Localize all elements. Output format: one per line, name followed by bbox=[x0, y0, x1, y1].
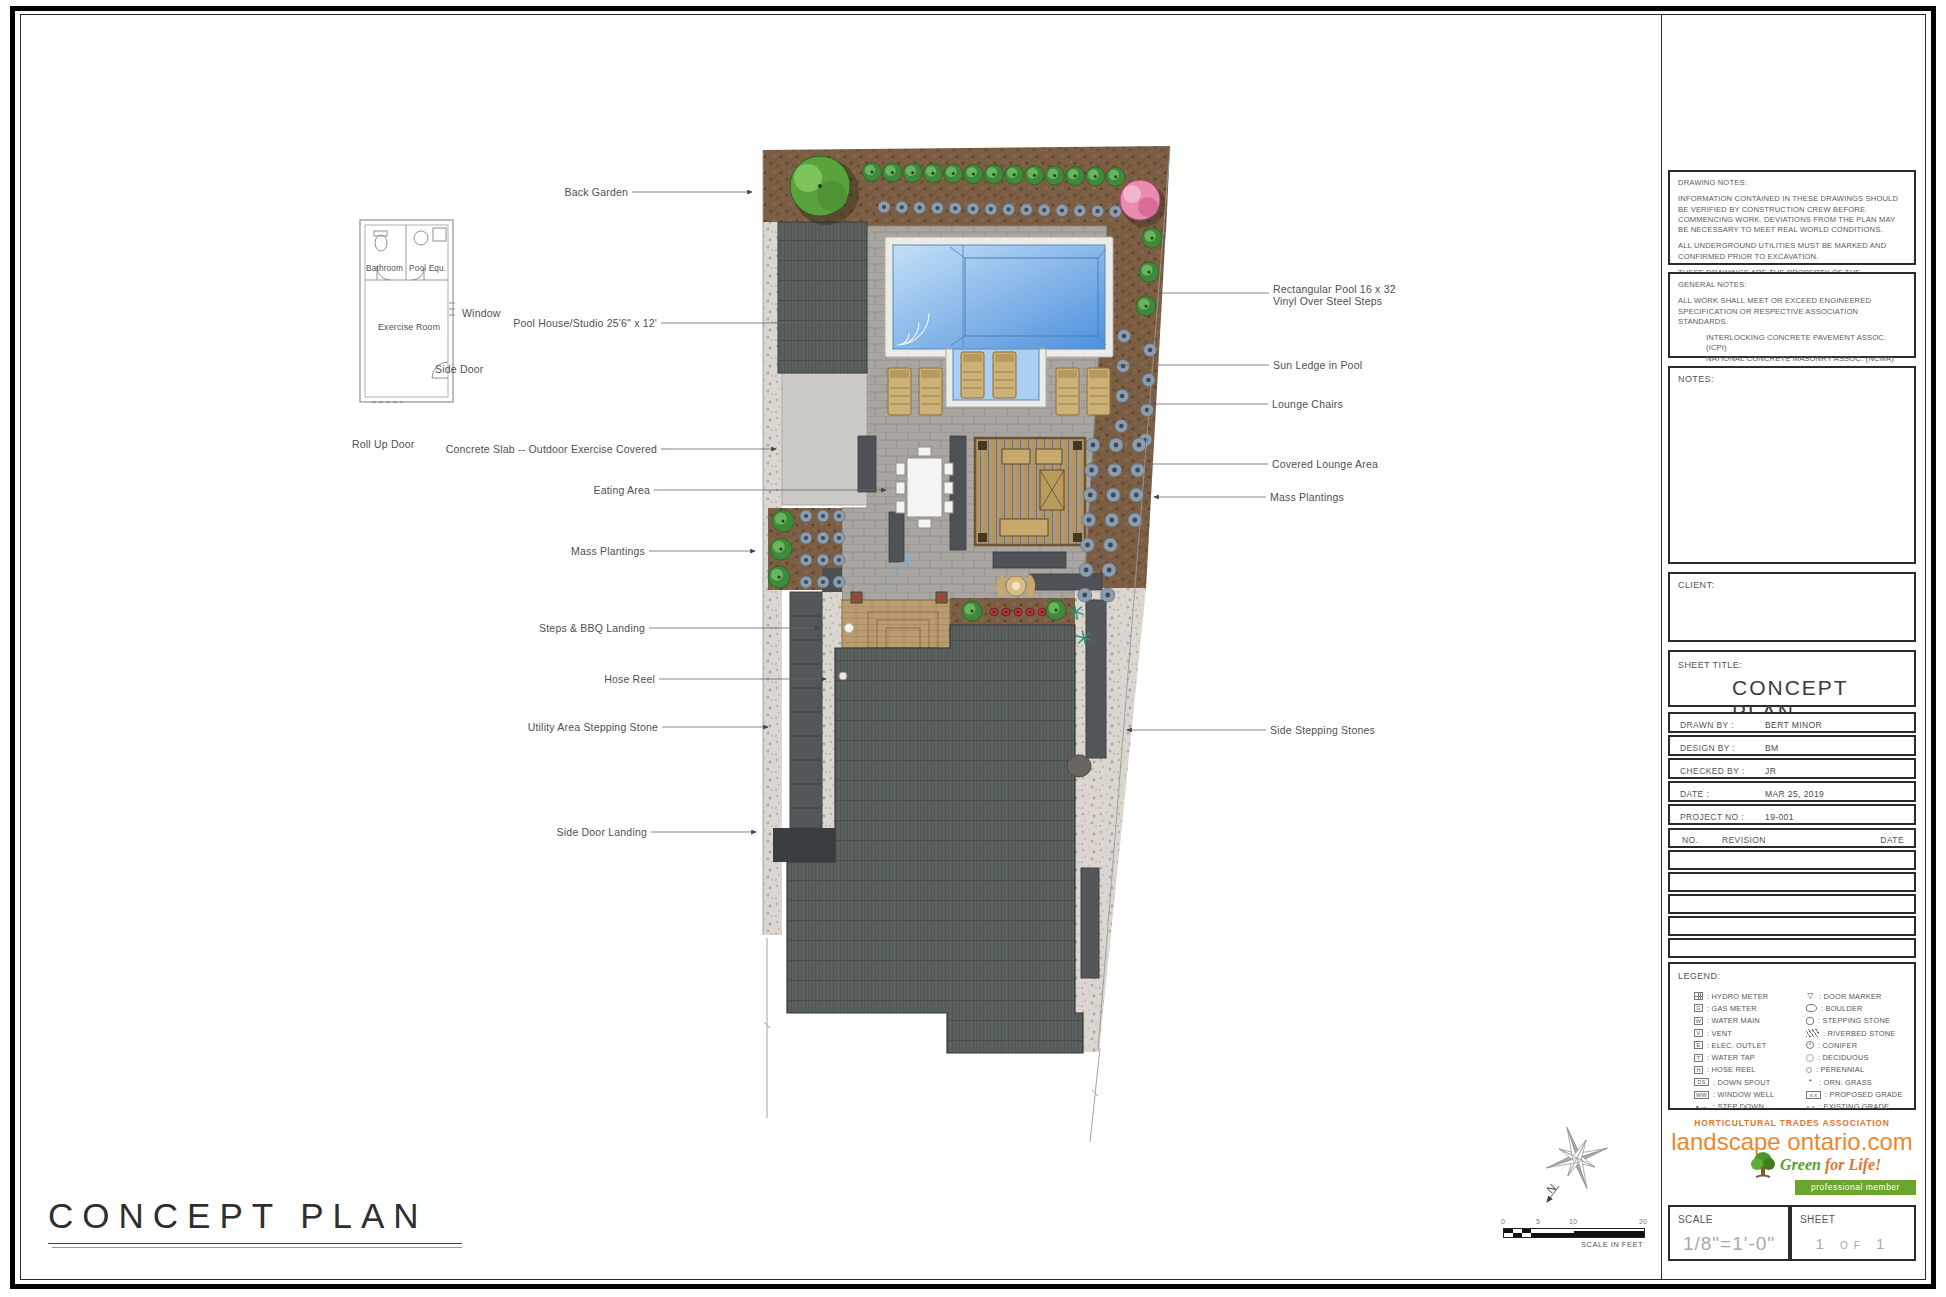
legend-item-hose-reel: H: HOSE REEL bbox=[1694, 1064, 1802, 1076]
sheet-title-box: SHEET TITLE: CONCEPT PLAN bbox=[1668, 650, 1916, 707]
legend-item-label: : WINDOW WELL bbox=[1713, 1090, 1774, 1099]
perennial-icon bbox=[1806, 1067, 1812, 1073]
info-row-project-no: PROJECT NO :19-001 bbox=[1668, 804, 1916, 825]
inset-room-exercise-room: Exercise Room bbox=[378, 322, 440, 332]
legend-item-label: : DOWN SPOUT bbox=[1713, 1078, 1770, 1087]
notes-label: NOTES: bbox=[1678, 374, 1714, 384]
callout-concrete-slab-outdoor-exercise-covered: Concrete Slab -- Outdoor Exercise Covere… bbox=[446, 443, 657, 455]
legend-item-label: : STEPPING STONE bbox=[1818, 1016, 1890, 1025]
legend-item-label: : ELEC. OUTLET bbox=[1707, 1041, 1766, 1050]
revision-col-no: NO. bbox=[1682, 835, 1698, 845]
riverbed-stone-icon bbox=[1806, 1029, 1819, 1037]
info-row-date: DATE :MAR 25, 2019 bbox=[1668, 781, 1916, 802]
water-tap-icon: T bbox=[1694, 1054, 1703, 1062]
legend-item-label: : VENT bbox=[1707, 1029, 1732, 1038]
legend-item-label: : RIVERBED STONE bbox=[1823, 1029, 1895, 1038]
drawing-notes-box: DRAWING NOTES: INFORMATION CONTAINED IN … bbox=[1668, 170, 1916, 265]
legend-item-down-spout: DS: DOWN SPOUT bbox=[1694, 1076, 1802, 1088]
legend-item-label: : PERENNIAL bbox=[1816, 1065, 1864, 1074]
plan-title-underline bbox=[48, 1243, 462, 1244]
info-label: DESIGN BY : bbox=[1680, 743, 1735, 753]
legend-item-water-main: W: WATER MAIN bbox=[1694, 1015, 1802, 1027]
legend-box: LEGEND: : HYDRO METERG: GAS METERW: WATE… bbox=[1668, 962, 1916, 1110]
gas-meter-icon: G bbox=[1694, 1004, 1703, 1012]
logo-tree-icon bbox=[1748, 1150, 1778, 1180]
revision-header: NO. REVISION DATE bbox=[1668, 828, 1916, 848]
callout-side-door-landing: Side Door Landing bbox=[557, 826, 647, 838]
scale-tick: 5 bbox=[1536, 1218, 1540, 1225]
window-well-icon: WW bbox=[1694, 1091, 1709, 1099]
logo-slogan: Green for Life! bbox=[1780, 1156, 1881, 1174]
info-value: MAR 25, 2019 bbox=[1765, 789, 1824, 799]
hose-reel-icon: H bbox=[1694, 1066, 1703, 1074]
existing-grade-icon: x.x bbox=[1806, 1103, 1815, 1111]
inset-callout-window: Window bbox=[462, 307, 501, 319]
legend-item-label: : EXISTING GRADE bbox=[1819, 1102, 1889, 1111]
general-notes-box: GENERAL NOTES: ALL WORK SHALL MEET OR EX… bbox=[1668, 272, 1916, 358]
revision-col-revision: REVISION bbox=[1722, 835, 1766, 845]
info-row-drawn-by: DRAWN BY :BERT MINOR bbox=[1668, 712, 1916, 733]
legend-item-vent: V: VENT bbox=[1694, 1027, 1802, 1039]
inset-room-bathroom: Bathroom bbox=[366, 264, 403, 273]
revision-row-empty bbox=[1668, 850, 1916, 870]
legend-item-hydro-meter: : HYDRO METER bbox=[1694, 990, 1802, 1002]
info-value: 19-001 bbox=[1765, 812, 1794, 822]
revision-col-date: DATE bbox=[1880, 835, 1904, 845]
callout-mass-plantings: Mass Plantings bbox=[1270, 491, 1344, 503]
legend-item-elec-outlet: E: ELEC. OUTLET bbox=[1694, 1039, 1802, 1051]
vent-icon: V bbox=[1694, 1029, 1703, 1037]
standard-1: INTERLOCKING CONCRETE PAVEMENT ASSOC. (I… bbox=[1706, 333, 1906, 354]
callout-hose-reel: Hose Reel bbox=[604, 673, 655, 685]
info-row-checked-by: CHECKED BY :JR bbox=[1668, 758, 1916, 779]
inset-room-pool-equ: Pool Equ. bbox=[409, 264, 446, 273]
revision-row-empty bbox=[1668, 872, 1916, 892]
drawing-note-2: ALL UNDERGROUND UTILITIES MUST BE MARKED… bbox=[1678, 241, 1906, 262]
scale-bar-caption: SCALE IN FEET bbox=[1581, 1240, 1643, 1249]
legend-item-gas-meter: G: GAS METER bbox=[1694, 1002, 1802, 1014]
water-main-icon: W bbox=[1694, 1017, 1703, 1025]
legend-item-riverbed-stone: : RIVERBED STONE bbox=[1806, 1027, 1914, 1039]
orn-grass-icon: * bbox=[1806, 1078, 1815, 1086]
legend-item-label: : WATER MAIN bbox=[1707, 1016, 1760, 1025]
legend-item-label: : CONIFER bbox=[1818, 1041, 1857, 1050]
legend-item-label: : BOULDER bbox=[1821, 1004, 1863, 1013]
callout-utility-area-stepping-stone: Utility Area Stepping Stone bbox=[528, 721, 658, 733]
plan-title: CONCEPT PLAN bbox=[48, 1196, 428, 1236]
callout-pool-house-studio-25-6-x-12: Pool House/Studio 25'6" x 12' bbox=[513, 317, 657, 329]
door-marker-icon: ▽ bbox=[1806, 992, 1815, 1000]
title-block-divider bbox=[1661, 15, 1662, 1279]
deciduous-icon bbox=[1806, 1054, 1814, 1062]
legend-item-door-marker: ▽: DOOR MARKER bbox=[1806, 990, 1914, 1002]
client-label: CLIENT: bbox=[1678, 580, 1714, 590]
drawing-notes-label: DRAWING NOTES: bbox=[1678, 178, 1906, 188]
legend-item-step-down: •→: STEP DOWN bbox=[1694, 1101, 1802, 1113]
callout-lounge-chairs: Lounge Chairs bbox=[1272, 398, 1343, 410]
proposed-grade-icon: x.x bbox=[1806, 1091, 1821, 1099]
legend-item-label: : HOSE REEL bbox=[1707, 1065, 1756, 1074]
general-notes-label: GENERAL NOTES: bbox=[1678, 280, 1906, 290]
info-row-design-by: DESIGN BY :BM bbox=[1668, 735, 1916, 756]
legend-item-water-tap: T: WATER TAP bbox=[1694, 1051, 1802, 1063]
callout-back-garden: Back Garden bbox=[565, 186, 628, 198]
boulder-icon bbox=[1806, 1004, 1817, 1012]
scale-tick: 10 bbox=[1569, 1218, 1577, 1225]
notes-box: NOTES: bbox=[1668, 366, 1916, 564]
plan-title-underline-2 bbox=[52, 1247, 462, 1248]
info-value: JR bbox=[1765, 766, 1776, 776]
legend-item-conifer: *: CONIFER bbox=[1806, 1039, 1914, 1051]
legend-item-label: : PROPOSED GRADE bbox=[1825, 1090, 1903, 1099]
scale-bar-strip bbox=[1503, 1228, 1645, 1238]
callout-steps-bbq-landing: Steps & BBQ Landing bbox=[539, 622, 645, 634]
legend-item-label: : WATER TAP bbox=[1707, 1053, 1755, 1062]
callout-covered-lounge-area: Covered Lounge Area bbox=[1272, 458, 1378, 470]
down-spout-icon: DS bbox=[1694, 1078, 1709, 1086]
logo-slogan-orange: for Life! bbox=[1821, 1156, 1881, 1173]
logo-brand: landscape ontario.com bbox=[1668, 1128, 1916, 1156]
scale-tick: 0 bbox=[1501, 1218, 1505, 1225]
standard-2: NATIONAL CONCRETE MASONRY ASSOC. (NCMA) bbox=[1706, 354, 1906, 364]
logo-association-line: HORTICULTURAL TRADES ASSOCIATION bbox=[1668, 1118, 1916, 1128]
scale-box: SCALE 1/8"=1'-0" bbox=[1668, 1205, 1790, 1261]
conifer-icon: * bbox=[1806, 1041, 1814, 1049]
info-label: CHECKED BY : bbox=[1680, 766, 1745, 776]
step-down-icon: •→ bbox=[1694, 1103, 1709, 1111]
sheet-border-inner bbox=[20, 14, 1926, 1280]
revision-row-empty bbox=[1668, 894, 1916, 914]
info-value: BERT MINOR bbox=[1765, 720, 1822, 730]
scale-tick: 20 bbox=[1639, 1218, 1647, 1225]
logo-member-bar: professional member bbox=[1795, 1180, 1916, 1195]
sheet-number-value: 1 OF 1 bbox=[1792, 1235, 1914, 1252]
scale-bar: 051020 SCALE IN FEET bbox=[1503, 1218, 1643, 1252]
callout-rectangular-pool-16-x-32: Rectangular Pool 16 x 32 Vinyl Over Stee… bbox=[1273, 283, 1396, 307]
legend-item-proposed-grade: x.x: PROPOSED GRADE bbox=[1806, 1088, 1914, 1100]
scale-label: SCALE bbox=[1678, 1214, 1713, 1225]
callout-side-stepping-stones: Side Stepping Stones bbox=[1270, 724, 1375, 736]
revision-row-empty bbox=[1668, 938, 1916, 958]
revision-row-empty bbox=[1668, 916, 1916, 936]
drawing-sheet: N DRAWING NOTES: INFORMATION CONTAINED I… bbox=[0, 0, 1946, 1297]
legend-item-label: : DOOR MARKER bbox=[1819, 992, 1882, 1001]
drawing-note-1: INFORMATION CONTAINED IN THESE DRAWINGS … bbox=[1678, 194, 1906, 235]
info-label: DRAWN BY : bbox=[1680, 720, 1734, 730]
legend-item-window-well: WW: WINDOW WELL bbox=[1694, 1088, 1802, 1100]
hydro-meter-icon bbox=[1694, 992, 1703, 1000]
elec-outlet-icon: E bbox=[1694, 1041, 1703, 1049]
legend-item-boulder: : BOULDER bbox=[1806, 1002, 1914, 1014]
legend-item-perennial: : PERENNIAL bbox=[1806, 1064, 1914, 1076]
callout-sun-ledge-in-pool: Sun Ledge in Pool bbox=[1273, 359, 1362, 371]
info-label: PROJECT NO : bbox=[1680, 812, 1744, 822]
stepping-stone-icon bbox=[1806, 1017, 1814, 1025]
callout-mass-plantings: Mass Plantings bbox=[571, 545, 645, 557]
callout-eating-area: Eating Area bbox=[594, 484, 651, 496]
legend-item-label: : GAS METER bbox=[1707, 1004, 1757, 1013]
client-box: CLIENT: bbox=[1668, 572, 1916, 642]
sheet-number-label: SHEET bbox=[1800, 1214, 1835, 1225]
inset-callout-side-door: Side Door bbox=[435, 363, 484, 375]
general-notes-intro: ALL WORK SHALL MEET OR EXCEED ENGINEERED… bbox=[1678, 296, 1906, 327]
info-value: BM bbox=[1765, 743, 1779, 753]
sheet-title-label: SHEET TITLE: bbox=[1678, 660, 1742, 670]
legend-item-label: : DECIDUOUS bbox=[1818, 1053, 1869, 1062]
legend-item-label: : STEP DOWN bbox=[1713, 1102, 1764, 1111]
inset-callout-roll-up-door: Roll Up Door bbox=[352, 438, 415, 450]
info-label: DATE : bbox=[1680, 789, 1709, 799]
legend-label: LEGEND: bbox=[1678, 971, 1720, 981]
scale-value: 1/8"=1'-0" bbox=[1670, 1233, 1788, 1255]
legend-item-deciduous: : DECIDUOUS bbox=[1806, 1051, 1914, 1063]
sheet-number-box: SHEET 1 OF 1 bbox=[1790, 1205, 1916, 1261]
legend-item-label: : ORN. GRASS bbox=[1819, 1078, 1872, 1087]
legend-item-orn-grass: *: ORN. GRASS bbox=[1806, 1076, 1914, 1088]
legend-item-label: : HYDRO METER bbox=[1707, 992, 1768, 1001]
legend-item-existing-grade: x.x: EXISTING GRADE bbox=[1806, 1101, 1914, 1113]
logo-slogan-green: Green bbox=[1780, 1156, 1821, 1173]
legend-item-stepping-stone: : STEPPING STONE bbox=[1806, 1015, 1914, 1027]
